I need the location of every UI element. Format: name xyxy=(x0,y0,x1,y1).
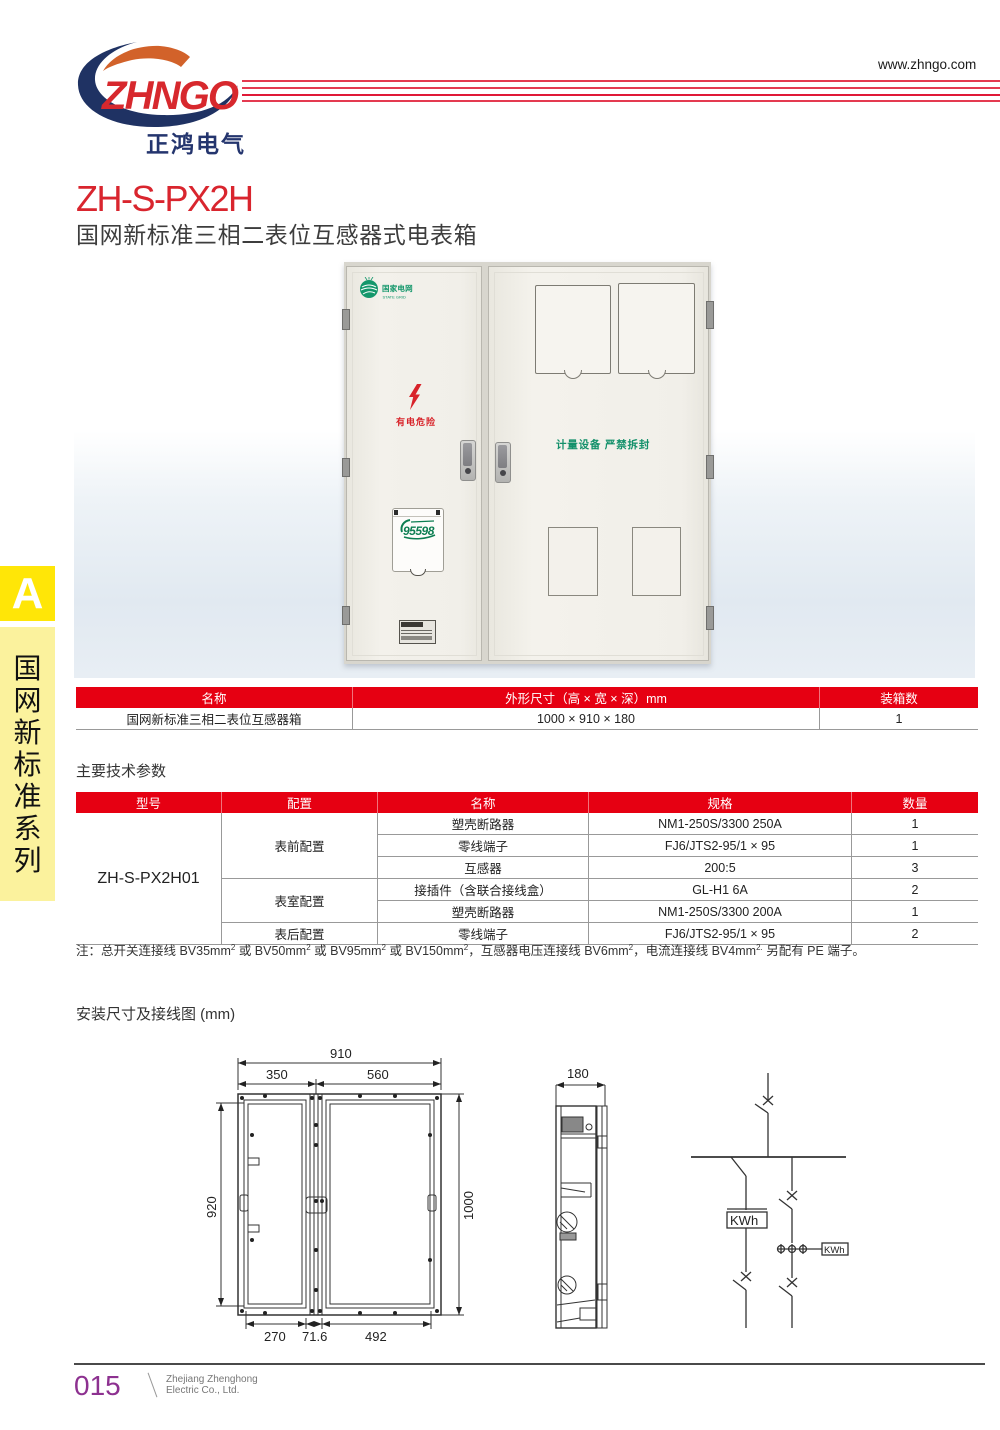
svg-text:STATE GRID: STATE GRID xyxy=(383,295,407,300)
svg-text:180: 180 xyxy=(567,1066,589,1081)
svg-text:920: 920 xyxy=(204,1196,219,1218)
svg-text:正鸿电气: 正鸿电气 xyxy=(146,131,246,157)
svg-text:1000: 1000 xyxy=(461,1191,476,1220)
svg-text:国家电网: 国家电网 xyxy=(382,283,413,293)
svg-text:350: 350 xyxy=(266,1067,288,1082)
svg-text:71.6: 71.6 xyxy=(302,1329,327,1344)
svg-text:910: 910 xyxy=(330,1046,352,1061)
svg-text:ZHNGO: ZHNGO xyxy=(101,74,239,118)
svg-text:492: 492 xyxy=(365,1329,387,1344)
svg-text:95598: 95598 xyxy=(403,524,435,538)
svg-text:560: 560 xyxy=(367,1067,389,1082)
svg-text:270: 270 xyxy=(264,1329,286,1344)
svg-text:KWh: KWh xyxy=(824,1245,845,1256)
svg-text:KWh: KWh xyxy=(730,1213,758,1228)
